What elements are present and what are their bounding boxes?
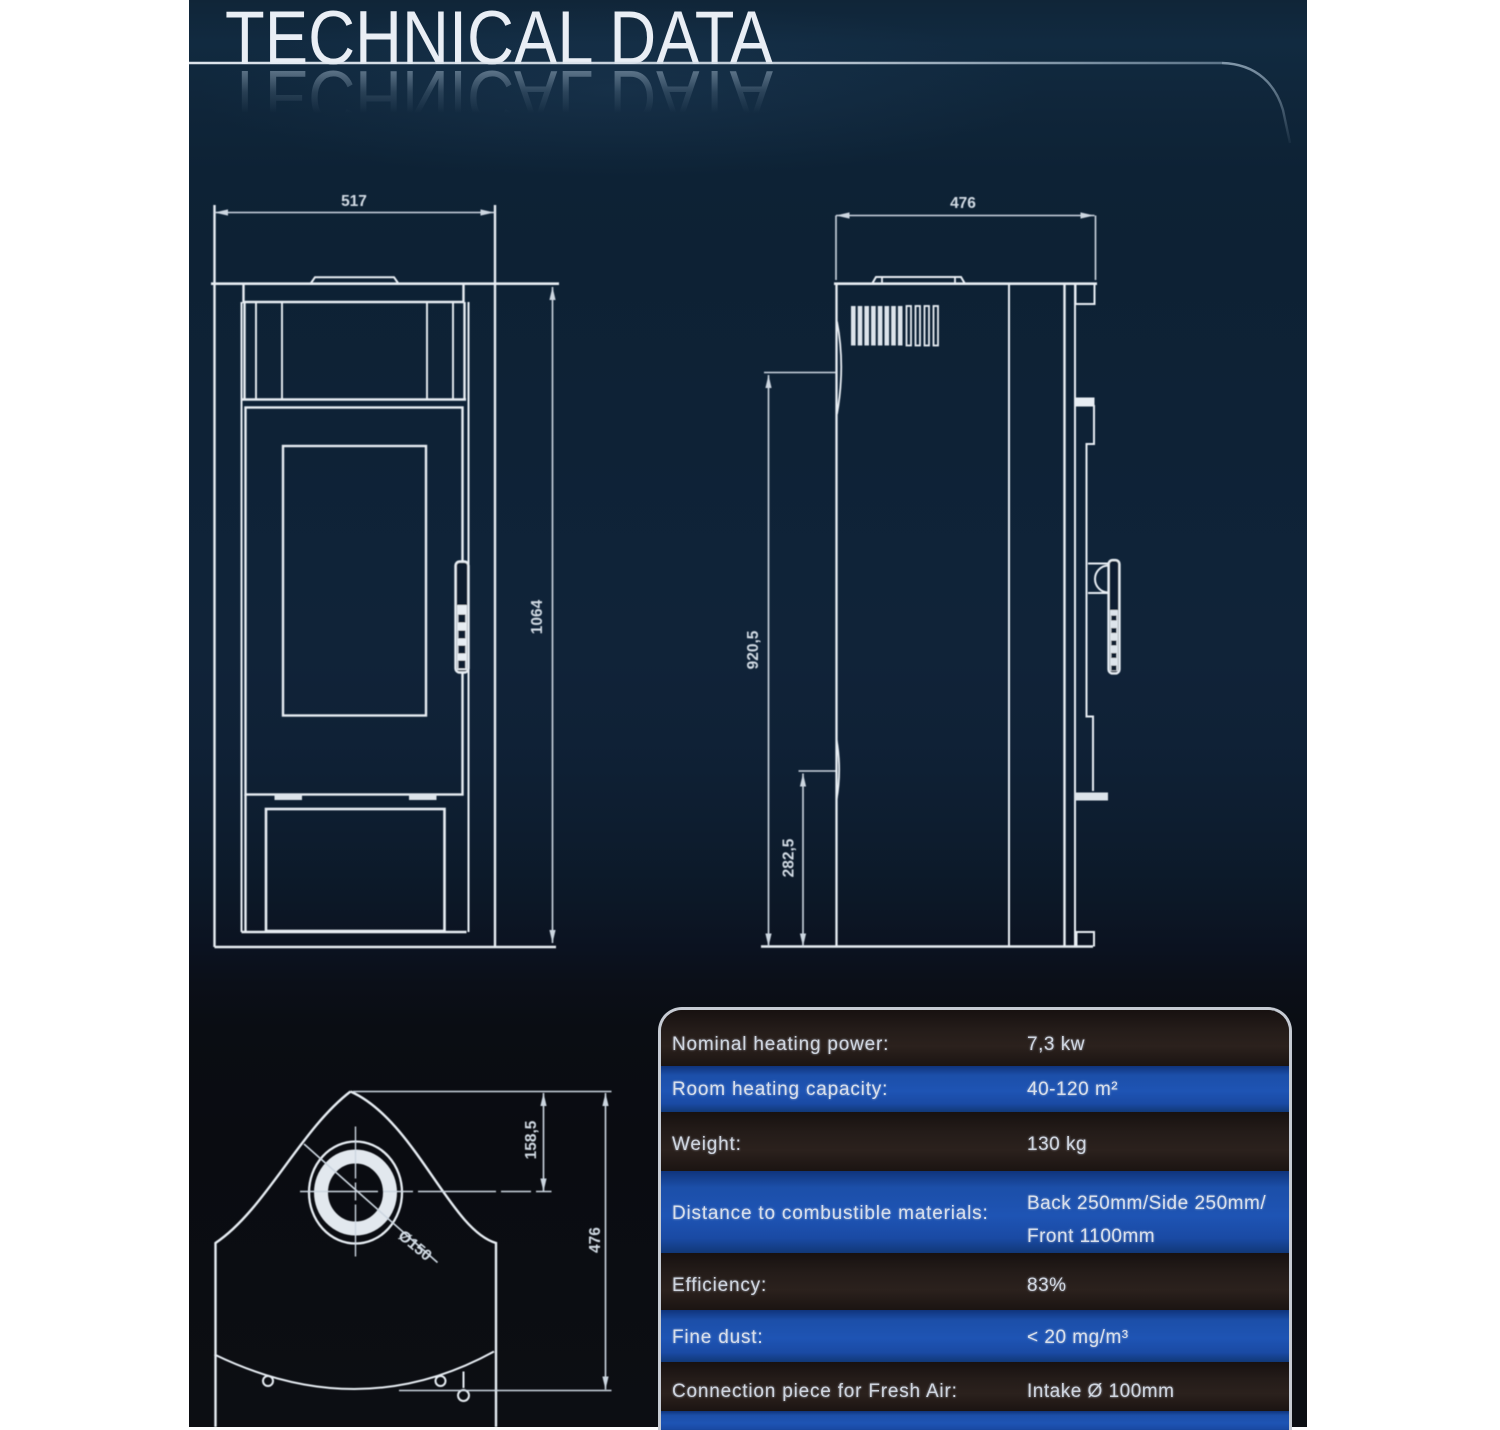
svg-text:1064: 1064	[529, 599, 546, 634]
svg-text:158,5: 158,5	[523, 1120, 540, 1159]
svg-text:920,5: 920,5	[745, 630, 762, 669]
svg-text:TECHNICAL DATA: TECHNICAL DATA	[225, 54, 773, 139]
svg-text:Ø150: Ø150	[395, 1227, 435, 1264]
svg-text:517: 517	[341, 193, 367, 210]
svg-text:476: 476	[950, 195, 976, 212]
svg-text:282,5: 282,5	[781, 838, 798, 877]
svg-text:476: 476	[587, 1227, 604, 1253]
